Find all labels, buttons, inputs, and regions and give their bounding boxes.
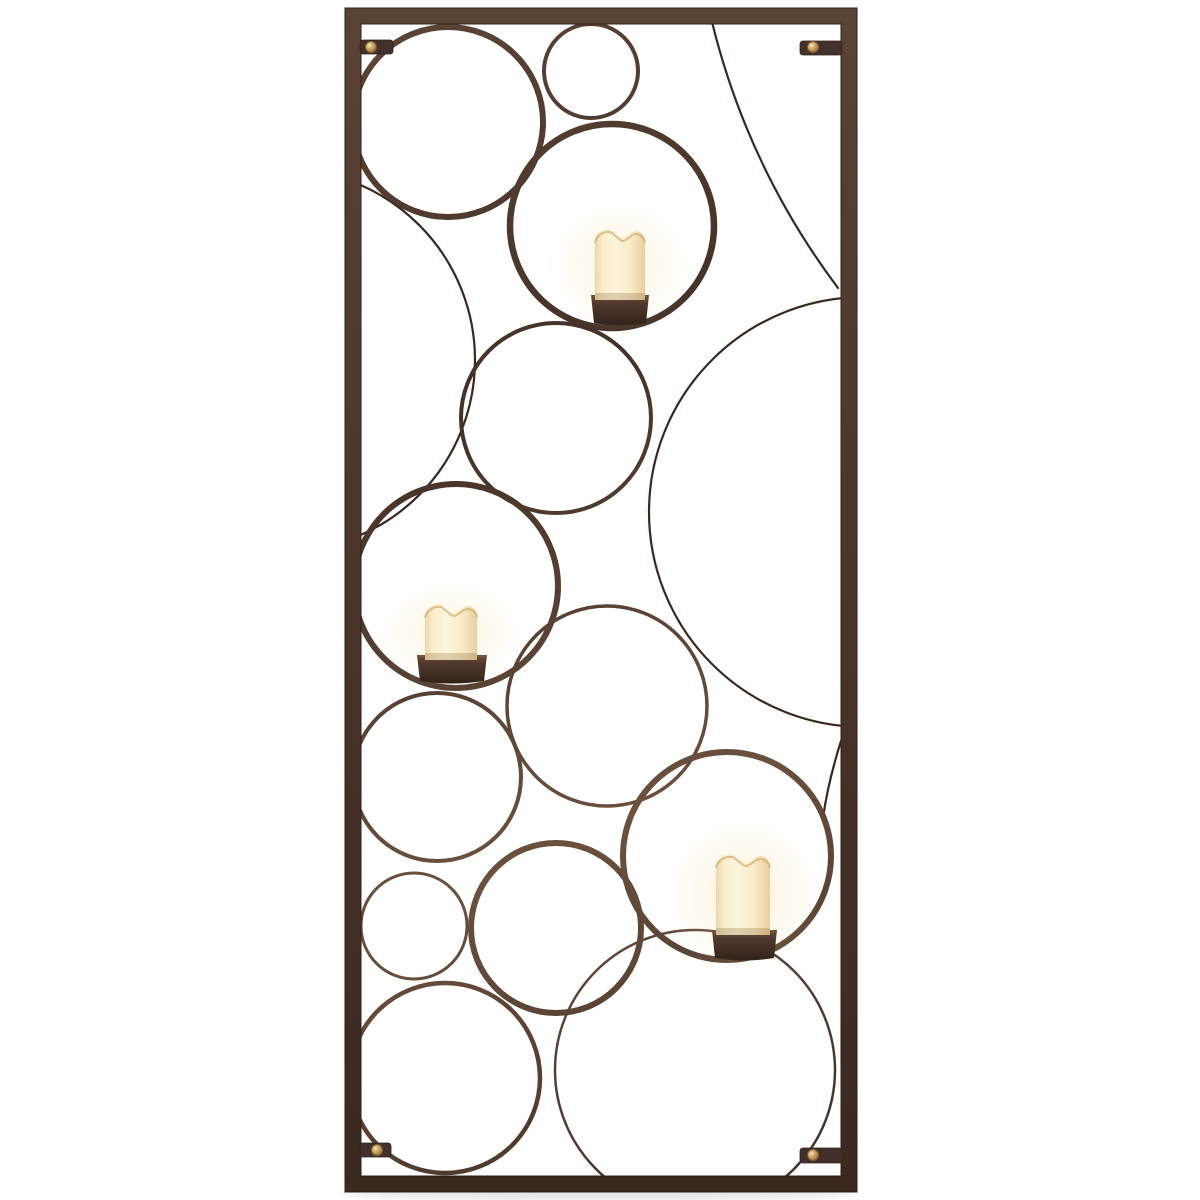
- bracket-screw: [372, 1145, 383, 1156]
- wire-arc: [712, 22, 838, 288]
- mount-bracket: [800, 41, 842, 55]
- candle-2: [373, 576, 529, 688]
- metal-ring: [461, 323, 651, 513]
- metal-ring: [353, 693, 521, 861]
- mount-bracket: [800, 1148, 842, 1163]
- wall-candle-holder-image: [0, 0, 1200, 1200]
- wire-arc: [649, 297, 1079, 727]
- screw-highlight: [368, 44, 371, 47]
- wax-base-shadow: [425, 653, 477, 660]
- wire-layer: [93, 22, 1079, 818]
- wax-base-shadow: [595, 293, 645, 300]
- candle-3: [662, 814, 824, 976]
- metal-ring: [544, 24, 638, 118]
- candle-body: [425, 604, 477, 660]
- candle-1: [545, 194, 695, 336]
- screw-highlight: [810, 44, 813, 47]
- screw-highlight: [810, 1152, 813, 1155]
- metal-ring: [555, 930, 835, 1200]
- candle-body: [716, 854, 770, 935]
- metal-ring: [471, 843, 641, 1013]
- metal-ring: [361, 873, 467, 979]
- bracket-screw: [366, 42, 377, 53]
- metal-ring: [507, 606, 707, 806]
- screw-highlight: [374, 1147, 377, 1150]
- wax-base-shadow: [716, 928, 770, 935]
- bracket-screw: [808, 1150, 819, 1161]
- product-photo: [0, 0, 1200, 1200]
- wire-arc: [823, 741, 841, 818]
- bracket-screw: [808, 42, 819, 53]
